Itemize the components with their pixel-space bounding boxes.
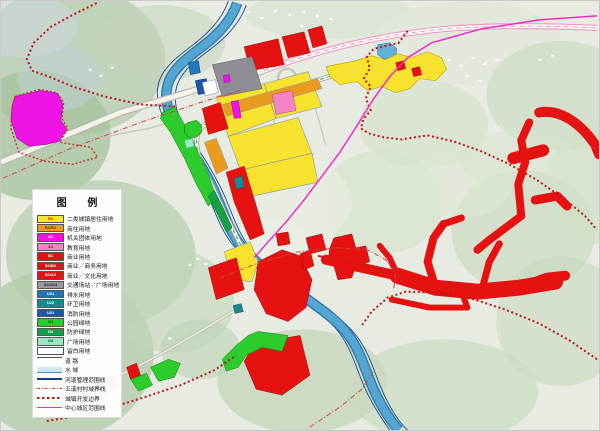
- legend-swatch: U21: [37, 290, 64, 298]
- legend-swatch: B1/R2: [37, 224, 64, 232]
- legend-swatch: A3: [37, 243, 64, 251]
- village-dot: [288, 14, 291, 16]
- legend-line-swatch: [37, 357, 62, 363]
- zone-education: [272, 91, 296, 115]
- village-dot: [483, 63, 486, 65]
- legend-item-9: U22环卫用地: [37, 299, 117, 308]
- legend-item-16: 水 域: [37, 365, 117, 374]
- legend-line-swatch: [37, 367, 62, 373]
- legend-line-sample: [37, 397, 62, 400]
- zone-plaza: [184, 138, 194, 148]
- legend-item-4: B1商业用地: [37, 252, 117, 261]
- legend-label: 防护绿地: [67, 327, 90, 336]
- legend-item-0: R2二类城镇居住用地: [37, 214, 117, 223]
- village-dot: [465, 75, 468, 77]
- legend-swatch: U31: [37, 309, 64, 317]
- village-dot: [539, 59, 542, 61]
- legend-title: 图 例: [37, 194, 117, 209]
- legend-label: 商业／商务用地: [67, 261, 108, 270]
- legend-label: 商业用地: [67, 252, 90, 261]
- legend-line-sample: [37, 357, 62, 363]
- zone-government: [223, 75, 230, 83]
- legend-label: 商住用地: [67, 224, 90, 233]
- legend-label: 教育用地: [67, 243, 90, 252]
- legend-item-10: U31消防用地: [37, 308, 117, 317]
- legend-item-6: B1/A2商业／文化用地: [37, 271, 117, 280]
- legend-line-swatch: [37, 404, 62, 410]
- scenic-red-branch: [513, 150, 543, 158]
- zone-reserved-white: [202, 80, 218, 96]
- legend-label: 水 域: [65, 365, 78, 374]
- legend-swatch: U22: [37, 299, 64, 307]
- legend-line-swatch: [37, 395, 62, 401]
- legend-item-1: B1/R2商住用地: [37, 223, 117, 232]
- legend-panel: 图 例 R2二类城镇居住用地B1/R2商住用地A1机关团体用地A3教育用地B1商…: [32, 189, 122, 418]
- village-dot: [260, 17, 263, 19]
- legend-swatch: [37, 347, 64, 355]
- legend-items: R2二类城镇居住用地B1/R2商住用地A1机关团体用地A3教育用地B1商业用地B…: [37, 214, 117, 412]
- zone-roundabout-green: [184, 120, 201, 137]
- village-dot: [246, 11, 249, 13]
- legend-item-19: 城镇开发边界: [37, 393, 117, 402]
- legend-swatch: R2: [37, 215, 64, 223]
- village-dot: [471, 57, 474, 59]
- legend-label: 道 路: [65, 356, 78, 365]
- legend-item-17: 河道管理范围线: [37, 374, 117, 383]
- legend-item-5: B1/B2商业／商务用地: [37, 261, 117, 270]
- village-dot: [316, 15, 319, 17]
- legend-label: 二类城镇居住用地: [67, 214, 113, 223]
- legend-item-3: A3教育用地: [37, 242, 117, 251]
- legend-label: 城镇开发边界: [65, 394, 100, 403]
- village-dot: [330, 18, 333, 20]
- legend-item-12: G2防护绿地: [37, 327, 117, 336]
- village-dot: [551, 55, 554, 57]
- village-dot: [459, 65, 462, 67]
- planning-map: 图 例 R2二类城镇居住用地B1/R2商住用地A1机关团体用地A3教育用地B1商…: [0, 0, 600, 431]
- legend-label: 中心城区范围线: [65, 403, 106, 412]
- zone-commercial: [276, 232, 290, 246]
- zone-commercial: [412, 67, 422, 77]
- legend-line-sample: [37, 388, 62, 389]
- legend-line-sample: [37, 367, 62, 373]
- legend-item-11: G1公园绿地: [37, 318, 117, 327]
- legend-item-14: 留白用地: [37, 346, 117, 355]
- village-dot: [89, 69, 92, 71]
- legend-swatch: G3: [37, 337, 64, 345]
- zone-government: [11, 91, 67, 147]
- legend-item-7: S42/G3交通场站／广场用地: [37, 280, 117, 289]
- village-dot: [478, 80, 481, 82]
- legend-label: 交通场站／广场用地: [67, 280, 119, 289]
- zone-sanitation: [234, 176, 244, 189]
- legend-item-18: 五溪村村域界线: [37, 384, 117, 393]
- legend-swatch: A1: [37, 233, 64, 241]
- legend-line-sample: [37, 378, 62, 380]
- legend-line-sample: [37, 407, 62, 409]
- village-dot: [300, 25, 303, 27]
- zone-park-green: [151, 359, 181, 381]
- legend-item-8: U21排水用地: [37, 290, 117, 299]
- legend-label: 五溪村村域界线: [65, 384, 106, 393]
- village-dot: [204, 263, 207, 265]
- legend-label: 机关团体用地: [67, 233, 102, 242]
- village-dot: [274, 10, 277, 12]
- zone-drainage: [188, 61, 200, 75]
- legend-label: 消防用地: [67, 309, 90, 318]
- scenic-red-branch: [392, 300, 466, 308]
- zone-sanitation: [233, 304, 243, 314]
- village-dot: [196, 258, 199, 260]
- legend-swatch: B1/A2: [37, 271, 64, 279]
- legend-swatch: G2: [37, 328, 64, 336]
- legend-label: 公园绿地: [67, 318, 90, 327]
- legend-swatch: B1: [37, 252, 64, 260]
- legend-swatch: B1/B2: [37, 262, 64, 270]
- legend-label: 商业／文化用地: [67, 271, 108, 280]
- legend-swatch: G1: [37, 318, 64, 326]
- legend-line-swatch: [37, 376, 62, 382]
- legend-item-15: 道 路: [37, 356, 117, 365]
- legend-line-swatch: [37, 385, 62, 391]
- legend-swatch: S42/G3: [37, 281, 64, 289]
- village-dot: [168, 337, 171, 339]
- village-dot: [302, 11, 305, 13]
- legend-label: 环卫用地: [67, 299, 90, 308]
- legend-label: 留白用地: [67, 346, 90, 355]
- legend-label: 排水用地: [67, 290, 90, 299]
- legend-item-2: A1机关团体用地: [37, 233, 117, 242]
- village-dot: [188, 264, 191, 266]
- legend-label: 河道管理范围线: [65, 375, 106, 384]
- village-dot: [100, 75, 103, 77]
- village-dot: [495, 59, 498, 61]
- legend-item-20: 中心城区范围线: [37, 403, 117, 412]
- village-dot: [448, 59, 451, 61]
- legend-item-13: G3广场用地: [37, 337, 117, 346]
- village-dot: [111, 67, 114, 69]
- legend-label: 广场用地: [67, 337, 90, 346]
